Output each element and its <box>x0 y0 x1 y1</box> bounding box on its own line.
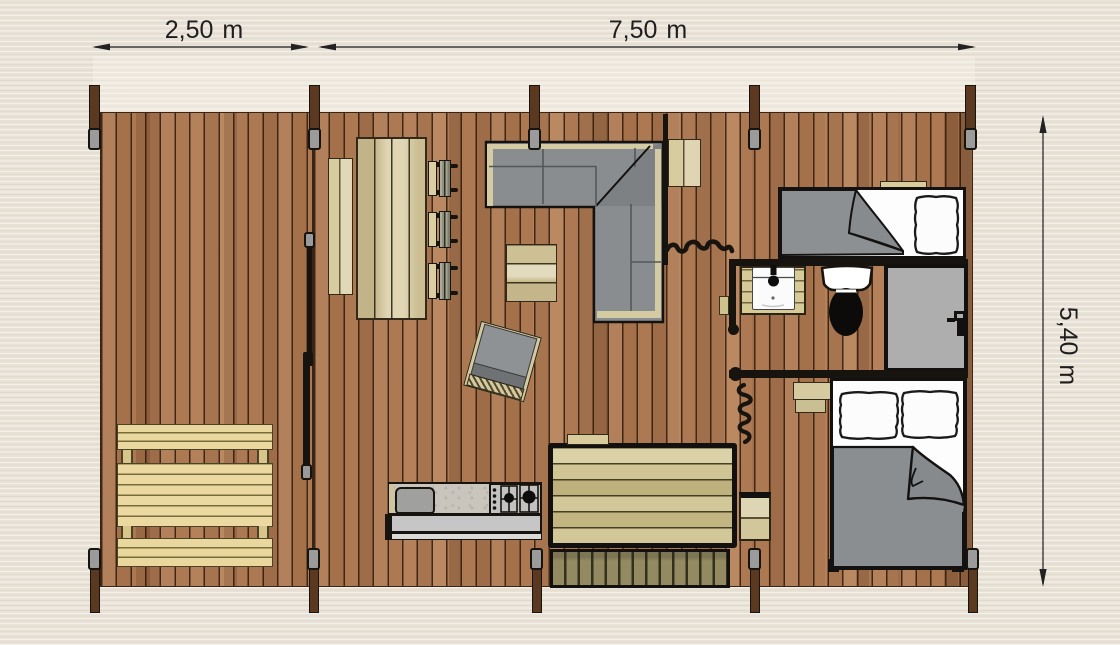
svg-text:5,40 m: 5,40 m <box>1054 307 1082 386</box>
svg-text:2,50 m: 2,50 m <box>165 16 244 44</box>
svg-text:7,50 m: 7,50 m <box>609 16 688 44</box>
